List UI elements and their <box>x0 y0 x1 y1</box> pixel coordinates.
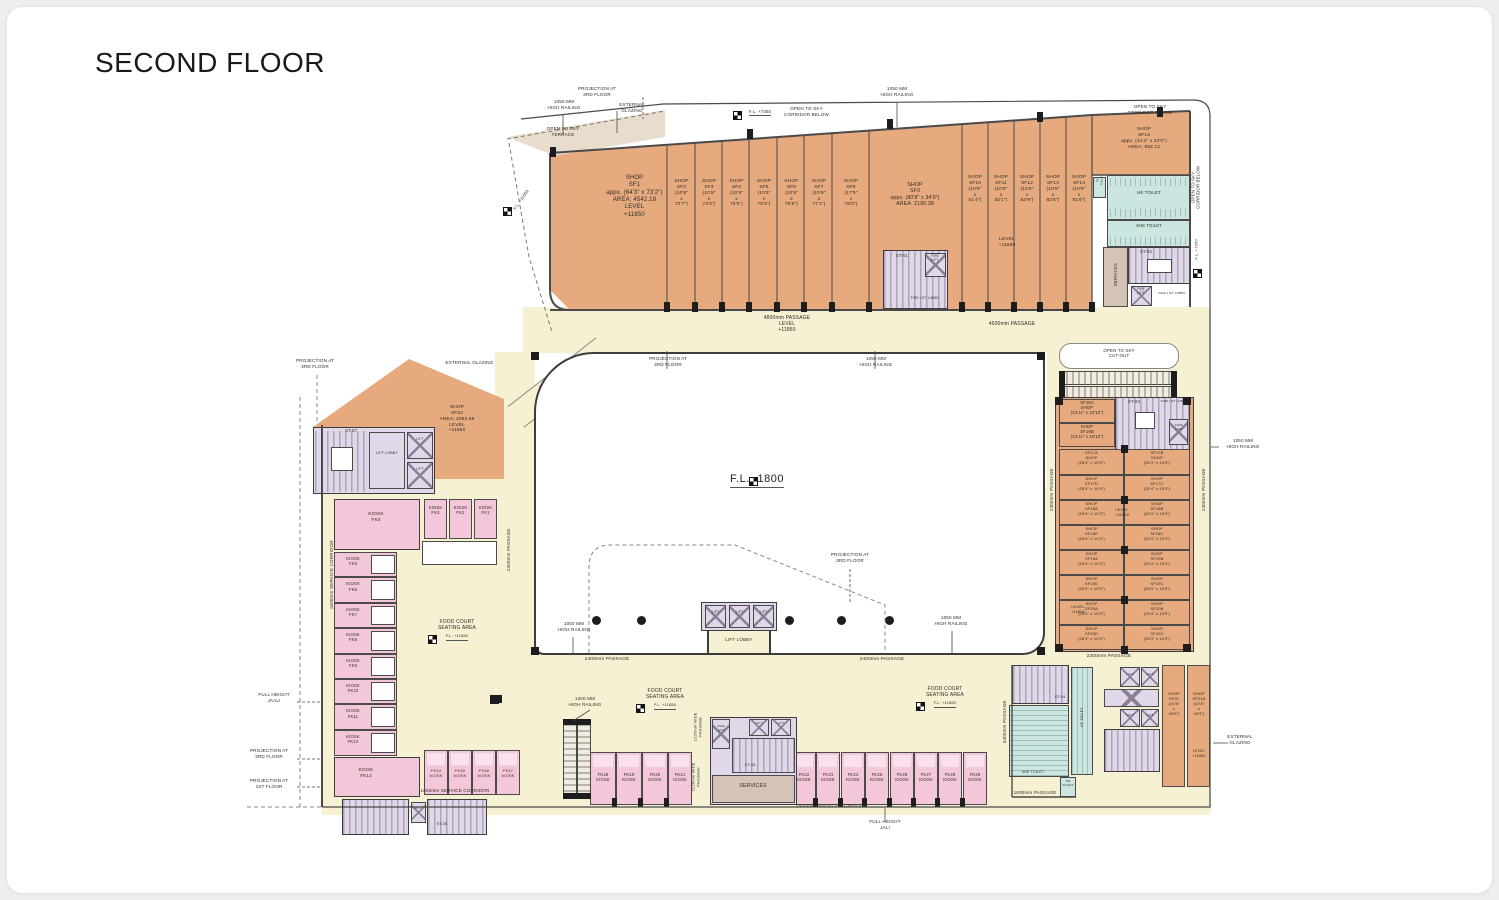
lift-central-2 <box>729 605 750 628</box>
atrium-column <box>637 616 646 625</box>
shop-sf3-label: SHOPSF3(10'9"x74'3") <box>696 179 723 208</box>
shop-sf22-label: SHOPSF22AREA: 2062.68LEVEL+11850 <box>427 405 487 434</box>
level-marker-icon <box>733 111 742 120</box>
grid-level-label-a: LEVEL+11850 <box>1102 508 1142 518</box>
stair-st01-label: ST-01 <box>887 253 917 258</box>
structural-column <box>774 302 780 312</box>
shop-shop-label-line: (28'4" x 10'9") <box>1144 461 1171 466</box>
structural-column <box>1055 397 1063 405</box>
fire-lift-st05-label-line: LIFT <box>718 729 725 733</box>
shop-sf14-label-line: 81'6") <box>1072 198 1085 204</box>
kiosk-fk6-label: KIOSKFK6 <box>335 581 371 591</box>
kiosk-fk29-label-line: KIOSK <box>968 777 982 782</box>
ph-toilet-bottom-label: PHTOILET <box>1058 780 1078 787</box>
kiosk-front-fk23 <box>819 755 837 767</box>
stair-st06-label: ST-06 <box>427 822 457 827</box>
grid-level-label-a-line: +11850 <box>1115 513 1129 518</box>
structural-column <box>911 798 916 807</box>
kiosk-back-fk12 <box>371 733 395 753</box>
passage-2125-label-line: PASSAGE <box>699 717 704 737</box>
passage-4800-label: 4800mm PASSAGELEVEL+11850 <box>742 315 832 333</box>
ann-railing-atrium-bl-line: HIGH RAILING <box>558 627 591 633</box>
shop-sf19a-label-line: (28'4" x 10'9") <box>1078 562 1105 567</box>
kiosk-fk20-label: FK20KIOSK <box>641 772 669 782</box>
kiosk-fk15-label-line: KIOSK <box>454 774 467 779</box>
food-court-label-1-line: SEATING AREA <box>438 625 476 631</box>
he-toilet-top-label: HE TOILET <box>1119 190 1179 195</box>
shop-sf3-label-line: 74'3") <box>702 202 715 208</box>
kiosk-front-fk29 <box>966 755 984 767</box>
lift-st06-label: LIFT <box>408 807 428 811</box>
ann-fl7350-top-text: F.L. +7350 <box>749 109 771 116</box>
ann-projection-atrium-bottom-line: 3RD FLOOR <box>836 558 864 564</box>
shop-sf9-label: SHOPSF9appx. (80'8" x 34'0")AREA: 2190.3… <box>875 182 955 207</box>
shop-sf1-label-line: appx. (64'3" x 73'2") <box>606 190 662 197</box>
lift-st07-2-label-text: LIFT <box>416 468 423 472</box>
service-corridor-south-label: 1500mm SERVICE CORRIDOR <box>769 804 894 810</box>
kiosk-fk25-label: FK25KIOSK <box>863 772 891 782</box>
structural-column <box>1121 596 1128 604</box>
kiosk-fk18-label: FK18KIOSK <box>589 772 617 782</box>
stair-st06-a <box>342 799 409 835</box>
structural-column <box>1121 496 1128 504</box>
structural-column <box>1055 644 1063 652</box>
kiosk-fk3-label: KIOSKFK3 <box>422 505 449 515</box>
structural-column <box>664 798 669 807</box>
structural-column <box>1183 644 1191 652</box>
passage-2400-gridleft-label: 2400mm PASSAGE <box>1049 455 1055 525</box>
passage-3400-label: 3400mm PASSAGE <box>1002 682 1008 762</box>
fire-lift-st02-label: FIRELIFT <box>1129 288 1153 296</box>
level-marker-icon <box>749 477 758 486</box>
escalator-foodcourt-b <box>577 719 591 799</box>
ph-toilet-top-label: PHTOILET <box>1096 170 1103 190</box>
structural-column <box>1089 302 1095 312</box>
ann-projection-atrium-top-line: 3RD FLOOR <box>654 362 682 368</box>
kiosk-fk7-label-line: FK7 <box>349 612 357 617</box>
passage-2125-label: 2125mm WIDEPASSAGE <box>694 699 704 754</box>
food-court-label-3-line: SEATING AREA <box>926 692 964 698</box>
lift-central-3-label: LIFT <box>753 610 774 614</box>
lift-br-4-label: LIFT <box>1140 714 1160 718</box>
lift-st05-b-label-text: LIFT <box>778 722 785 726</box>
kiosk-fk4-label: KIOSKFK4 <box>351 512 401 524</box>
kiosk-front-fk28 <box>941 755 959 767</box>
kiosk-fk5-label-line: FK5 <box>349 561 357 566</box>
lift-st05-b-label: LIFT <box>771 722 791 726</box>
shop-sf17d-label: SHOPSF17D(28'4" x 10'9") <box>1060 477 1123 492</box>
passage-4600-label-text: 4600mm PASSAGE <box>989 321 1035 327</box>
shop-sf19d-label: SHOPSF19D(28'4" x 10'9") <box>1060 577 1123 592</box>
lift-central-1-label: LIFT <box>705 610 726 614</box>
shop-sf18a-label-line: (28'4" x 10'9") <box>1078 512 1105 517</box>
lift-lobby-st07 <box>369 432 405 489</box>
shop-sf7-label: SHOPSF7(10'9"x77'1") <box>806 179 833 208</box>
passage-2400-gridright-label-text: 2400mm PASSAGE <box>1201 468 1207 511</box>
service-corridor-west-label: 1500mm SERVICE CORRIDOR <box>329 520 335 630</box>
shop-sf2-label: SHOPSF2(10'9"x73'7") <box>668 179 695 208</box>
lift-br-1-label-text: LIFT <box>1127 673 1134 677</box>
passage-4600-label: 4600mm PASSAGE <box>972 321 1052 327</box>
lift-br-4-label-text: LIFT <box>1147 714 1154 718</box>
lift-lobby-st07-label-text: LIFT LOBBY <box>376 451 398 455</box>
passage-2400-midleft-label: 2400mm PASSAGE <box>506 515 512 585</box>
kiosk-fk24-label-line: KIOSK <box>846 777 860 782</box>
structural-column <box>612 798 617 807</box>
structural-column <box>746 302 752 312</box>
stair-st04-label: ST-04 <box>1047 695 1073 700</box>
structural-column <box>563 793 591 799</box>
shop-sf21-label-line: 45'9") <box>1168 712 1179 717</box>
ann-ext-glazing-top-line: GLAZING <box>621 108 642 114</box>
kiosk-fk9-label-line: FK9 <box>349 663 357 668</box>
kiosk-back-fk9 <box>371 657 395 676</box>
passage-4800-label-line: +11850 <box>778 327 795 333</box>
kiosk-fk16-label-line: KIOSK <box>478 774 491 779</box>
shop-sf14-label: SHOPSF14(10'9"x81'6") <box>1066 175 1092 204</box>
kiosk-fk21-label-line: KIOSK <box>673 777 687 782</box>
kiosk-front-fk15 <box>451 753 469 765</box>
kiosk-fk19-label: FK19KIOSK <box>615 772 643 782</box>
escalator-cutout-a <box>1059 371 1177 385</box>
shop-sf19b-label: SHOPSF19B(28'4" x 10'9") <box>1125 552 1189 567</box>
ann-open-sky-terrace-line: TERRACE <box>551 132 574 138</box>
ann-fl7350-east: F.L. +7350 <box>1195 227 1200 271</box>
structural-column <box>1037 112 1043 122</box>
structural-column <box>638 798 643 807</box>
kiosk-fk12-label: KIOSKFK12 <box>335 734 371 744</box>
structural-column <box>1037 302 1043 312</box>
shop-sf4-label-line: 75'0") <box>730 202 743 208</box>
food-court-fl-label-2: F.L. +11850 <box>638 703 692 710</box>
kiosk-fk6-label-line: FK6 <box>349 587 357 592</box>
kiosk-back-fk11 <box>371 707 395 726</box>
shop-sf16b-label: SHOPSF16B(23'11" x 10'10") <box>1060 424 1114 439</box>
kiosk-fk28-label-line: KIOSK <box>943 777 957 782</box>
passage-2400-south-b-label-text: 2400mm PASSAGE <box>860 657 905 663</box>
kiosk-fk29-label: FK29KIOSK <box>961 772 989 782</box>
shop-sf18d-label: SHOPSF18D(28'4" x 10'9") <box>1060 527 1123 542</box>
passage-2400-south-b-label: 2400mm PASSAGE <box>842 657 922 663</box>
lift-br-3-label: LIFT <box>1120 714 1140 718</box>
kiosk-front-fk16 <box>475 753 493 765</box>
passage-1600-label: 1600mm PASSAGE <box>1004 790 1066 796</box>
lift-br-3 <box>1120 709 1140 727</box>
level-marker-icon <box>916 702 925 711</box>
kiosk-fk5-label: KIOSKFK5 <box>335 556 371 566</box>
she-toilet-top-label: SHE TOILET <box>1119 223 1179 228</box>
shop-sf20b-label: SHOPSF20B(28'4" x 10'9") <box>1125 602 1189 617</box>
structural-column <box>692 302 698 312</box>
ann-open-sky-corridor-topright-line: CORRIDOR BELOW <box>1128 110 1173 116</box>
fire-lift-st05-label: FIRELIFT <box>708 725 734 732</box>
service-corridor-west-label-text: 1500mm SERVICE CORRIDOR <box>329 540 335 609</box>
fire-lift-lobby-st02-label-text: FIRE LIFT LOBBY <box>1158 292 1186 296</box>
shop-sf21 <box>1162 665 1185 787</box>
food-court-fl-label-3: F.L. +11850 <box>918 701 972 708</box>
shop-sf21a-level-label-line: +11850 <box>1192 754 1205 759</box>
structural-column <box>866 302 872 312</box>
stair-st04-label-text: ST-04 <box>1055 695 1066 700</box>
kiosk-fk28-label: FK28KIOSK <box>936 772 964 782</box>
shop-sf10-label-line: 81'4") <box>968 198 981 204</box>
lift-lobby-br <box>1104 689 1159 707</box>
shop-sf18c-label: SHOPSF18C(28'4" x 10'9") <box>1125 527 1189 542</box>
ph-toilet-top-label-line: TOILET <box>1100 174 1104 185</box>
ann-projection-3rd-sw-line: 3RD FLOOR <box>255 754 283 760</box>
kiosk-fk26-label-line: KIOSK <box>895 777 909 782</box>
ann-railing-atrium-top: 1050 MMHIGH RAILING <box>845 356 907 367</box>
fire-lift-st01-label: FIRELIFT <box>923 255 947 263</box>
shop-sf9-label-line: AREA: 2190.38 <box>896 201 934 207</box>
shop-sf18b-label-line: (28'4" x 10'9") <box>1144 512 1171 517</box>
shop-sf1-label-line: LEVEL <box>625 204 644 211</box>
food-court-fl-label-2-text: F.L. +11850 <box>654 703 676 710</box>
ann-full-height-jaali-line: JAALI <box>267 698 280 704</box>
ann-railing-atrium-bl: 1050 MMHIGH RAILING <box>543 621 605 632</box>
structural-column <box>531 352 539 360</box>
kiosk-front-fk20 <box>645 755 665 767</box>
kiosk-front-fk21 <box>671 755 689 767</box>
shop-sf11-label: SHOPSF11(10'9"x82'1") <box>988 175 1014 204</box>
shop-shop-label-line: (28'4" x 10'9") <box>1078 461 1105 466</box>
shop-sf16a-label-line: (23'11" x 10'10") <box>1071 410 1104 415</box>
shop-sf5-label-line: 75'8") <box>757 202 770 208</box>
shop-sf8-label: SHOPSF8(17'9"x78'0") <box>833 179 869 208</box>
kiosk-fk10-label: KIOSKFK10 <box>335 683 371 693</box>
shop-sf21a-label-line: 45'9") <box>1193 712 1204 717</box>
shop-shop-label: SF17ASHOP(28'4" x 10'9") <box>1060 451 1123 466</box>
floor-plan: 3400mm BRIDGEOPEN TO SKYST-01FIRELIFTFIR… <box>7 7 1499 900</box>
shop-sf4-label: SHOPSF4(10'9"x75'0") <box>723 179 750 208</box>
lift-st05-a-label-text: LIFT <box>756 722 763 726</box>
shop-sf1-label-line: SHOP <box>626 175 644 182</box>
central-lift-lobby-label: LIFT LOBBY <box>709 637 769 643</box>
service-corridor-1600-label: 1600mm SERVICE CORRIDOR <box>405 788 505 794</box>
food-court-label-2: FOOD COURTSEATING AREA <box>620 688 710 700</box>
services-top-right-label-text: SERVICES <box>1113 263 1118 286</box>
shop-sf18c-label-line: (28'4" x 10'9") <box>1144 537 1171 542</box>
kiosk-fk4 <box>334 499 420 550</box>
kiosk-back-fk7 <box>371 606 395 625</box>
lift-lobby-stub <box>707 631 771 655</box>
kiosk-fk20-label-line: KIOSK <box>648 777 662 782</box>
shop-sf19c-label: SHOPSF19C(28'4" x 10'9") <box>1125 577 1189 592</box>
shop-sf17d-label-line: (28'4" x 10'9") <box>1078 487 1105 492</box>
ann-projection-1st-sw-line: 1ST FLOOR <box>256 784 283 790</box>
she-toilet-bottom <box>1009 705 1069 777</box>
shop-sf7-label-line: 77'1") <box>812 202 825 208</box>
ann-open-sky-corridor-east: OPEN TO SKYCORRIDOR BELOW <box>1191 152 1202 222</box>
structural-column <box>1037 352 1045 360</box>
stair-st05-label-text: ST-05 <box>745 763 756 768</box>
kiosk-fk18-label-line: KIOSK <box>596 777 610 782</box>
service-corridor-1600-label-text: 1600mm SERVICE CORRIDOR <box>421 788 490 794</box>
food-court-fl-label-1-text: F.L. +11850 <box>446 634 468 641</box>
ann-open-sky-terrace: OPEN TO SKYTERRACE <box>532 126 594 137</box>
shop-sf12-label-line: 82'9") <box>1020 198 1033 204</box>
shop-sf5-label: SHOPSF5(10'9"x75'8") <box>751 179 778 208</box>
lift-br-1-label: LIFT <box>1120 673 1140 677</box>
lift-br-2-label: LIFT <box>1140 673 1160 677</box>
kiosk-fk11-label: KIOSKFK11 <box>335 708 371 718</box>
structural-column <box>563 719 591 725</box>
escalator-foodcourt-a <box>563 719 577 799</box>
kiosk-fk17-label: FK17KIOSK <box>494 769 522 779</box>
kiosk-fk13-label-line: FK13 <box>360 773 372 779</box>
shop-sf15-label-line: AREA: 952.12 <box>1128 145 1160 151</box>
she-toilet-stalls <box>1110 237 1187 245</box>
structural-column <box>1011 302 1017 312</box>
ann-railing-1200-line: HIGH RAILING <box>569 702 602 708</box>
atrium-column <box>885 616 894 625</box>
shop-sf20d-label-line: (28'4" x 10'9") <box>1078 637 1105 642</box>
lift-central-1 <box>705 605 726 628</box>
lift-br-2-label-text: LIFT <box>1147 673 1154 677</box>
lift-central-2-label-text: LIFT <box>736 610 744 614</box>
food-court-fl-label-3-text: F.L. +11850 <box>934 701 956 708</box>
kiosk-fk8-label: KIOSKFK8 <box>335 632 371 642</box>
central-lift-lobby-label-text: LIFT LOBBY <box>725 637 752 643</box>
shop-sf6-label: SHOPSF6(10'9"x76'5") <box>778 179 805 208</box>
food-court-fl-label-1: F.L. +11850 <box>430 634 484 641</box>
ann-projection-1st-sw: PROJECTION AT1ST FLOOR <box>239 778 299 789</box>
kiosk-back-fk6 <box>371 580 395 599</box>
structural-column <box>959 302 965 312</box>
shop-sf16b-label-line: (23'11" x 10'10") <box>1071 434 1104 439</box>
shop-sf19c-label-line: (28'4" x 10'9") <box>1144 587 1171 592</box>
shop-sf20c-label-line: (28'4" x 10'9") <box>1144 637 1171 642</box>
ph-toilet-bottom-label-line: TOILET <box>1063 784 1074 788</box>
shop-sf19d-label-line: (28'4" x 10'9") <box>1078 587 1105 592</box>
structural-column <box>1121 646 1128 654</box>
kiosk-fk2-label-line: FK2 <box>456 510 464 515</box>
ann-railing-atrium-top-line: HIGH RAILING <box>860 362 893 368</box>
ann-ext-glazing-east-line: GLAZING <box>1229 740 1250 746</box>
canvas-card: SECOND FLOOR 3400mm BRIDGEOPEN TO SKYST-… <box>6 6 1493 894</box>
passage-2200-label-text: 2200mm PASSAGE <box>1087 654 1132 660</box>
kiosk-front-fk27 <box>917 755 935 767</box>
shop-sf17c-label: SHOPSF17C(28'4" x 10'9") <box>1125 477 1189 492</box>
structural-column <box>719 302 725 312</box>
fire-lift-st03-label-line: LIFT <box>1176 428 1183 432</box>
kiosk-fk21-label: FK21KIOSK <box>667 772 693 782</box>
lift-br-2 <box>1141 667 1159 687</box>
shop-sf20c-label: SHOPSF20C(28'4" x 10'9") <box>1125 627 1189 642</box>
structural-column <box>550 147 556 157</box>
kiosk-fk10-label-line: FK10 <box>348 688 359 693</box>
kiosk-fk22-label-line: KIOSK <box>797 777 811 782</box>
he-toilet-bottom-label-text: HE TOILET <box>1080 707 1084 727</box>
shop-sf13-label: SHOPSF13(10'9"x82'6") <box>1040 175 1066 204</box>
kiosk-fk12-label-line: FK12 <box>348 739 359 744</box>
shop-sf18d-label-line: (28'4" x 10'9") <box>1078 537 1105 542</box>
ann-full-height-jali-line: JALI <box>880 825 890 831</box>
atrium-column <box>837 616 846 625</box>
she-toilet-top-label-text: SHE TOILET <box>1136 223 1162 228</box>
lift-central-3-label-text: LIFT <box>760 610 768 614</box>
kiosk-front-fk24 <box>844 755 862 767</box>
kiosk-front-fk14 <box>427 753 445 765</box>
structural-column <box>935 798 940 807</box>
screenshot-stage: SECOND FLOOR 3400mm BRIDGEOPEN TO SKYST-… <box>0 0 1499 900</box>
lift-br-4 <box>1141 709 1159 727</box>
structural-column <box>960 798 965 807</box>
kiosk-front-fk18 <box>593 755 613 767</box>
ann-railing-topleft: 1050 MMHIGH RAILING <box>533 99 595 110</box>
ann-full-height-jaali: FULL HEIGHTJAALI <box>245 692 303 703</box>
shop-sf20b-label-line: (28'4" x 10'9") <box>1144 612 1171 617</box>
ann-ext-glazing-top: EXTERNALGLAZING <box>607 102 657 113</box>
stair-st06-label-text: ST-06 <box>437 822 448 827</box>
lift-st05-a-label: LIFT <box>749 722 769 726</box>
ann-railing-atrium-br-line: HIGH RAILING <box>935 621 968 627</box>
he-toilet-stalls-a <box>1110 178 1187 186</box>
fire-lift-lobby-st01-label-text: FIRE LIFT LOBBY <box>911 297 939 301</box>
structural-column <box>1121 445 1128 453</box>
shop-sf1-label-line: +11850 <box>624 212 645 219</box>
lift-central-3 <box>753 605 774 628</box>
level-marker-icon <box>503 207 512 216</box>
strip-level-label-line: +11850 <box>999 243 1016 249</box>
level-marker-icon <box>428 635 437 644</box>
grid-level-label-b-line: +11850 <box>1071 610 1085 615</box>
shop-sf17c-label-line: (28'4" x 10'9") <box>1144 487 1171 492</box>
structural-column <box>887 119 893 129</box>
shop-sf16a-label: SF16ASHOP(23'11" x 10'10") <box>1060 400 1114 415</box>
kiosk-front-fk26 <box>893 755 911 767</box>
passage-1600-label-text: 1600mm PASSAGE <box>1014 790 1057 796</box>
passage-2400-south-a-label-text: 2400mm PASSAGE <box>585 657 630 663</box>
kiosk-fk11-label-line: FK11 <box>348 714 358 719</box>
he-toilet-bottom-label: HE TOILET <box>1080 697 1084 737</box>
ann-railing-topcenter-line: HIGH RAILING <box>881 92 914 98</box>
stair-st07-label: ST-07 <box>333 428 369 433</box>
structural-column <box>1171 371 1177 399</box>
kiosk-fk19-label-line: KIOSK <box>622 777 636 782</box>
stair-st05-label: ST-05 <box>735 763 765 768</box>
structural-column <box>1059 371 1065 399</box>
she-toilet-bottom-label: SHE TOILET <box>1013 770 1053 774</box>
level-marker-icon <box>636 704 645 713</box>
stair-st05 <box>732 738 795 773</box>
kiosk-fk17-label-line: KIOSK <box>502 774 515 779</box>
structural-column <box>531 647 539 655</box>
ann-full-height-jali: FULL HEIGHTJALI <box>855 819 915 830</box>
stair-st07-label-text: ST-07 <box>345 428 357 433</box>
kiosk-fk4-label-line: FK4 <box>371 518 380 524</box>
passage-2225-label-line: PASSAGE <box>697 767 702 787</box>
ann-railing-topcenter: 1050 MMHIGH RAILING <box>867 86 927 97</box>
shop-sf19b-label-line: (28'4" x 10'9") <box>1144 562 1171 567</box>
food-court-label-2-line: SEATING AREA <box>646 694 684 700</box>
open-sky-cutout-label: OPEN TO SKYCUT-OUT <box>1069 348 1169 359</box>
lift-br-3-label-text: LIFT <box>1127 714 1134 718</box>
kiosk-fk7-label: KIOSKFK7 <box>335 607 371 617</box>
shop-sf12-label: SHOPSF12(10'9"x82'9") <box>1014 175 1040 204</box>
kiosk-front-fk19 <box>619 755 639 767</box>
ann-open-sky-corridor-east-line: CORRIDOR BELOW <box>1196 166 1201 209</box>
ann-railing-topleft-line: HIGH RAILING <box>548 105 581 111</box>
kiosk-back-fk10 <box>371 682 395 701</box>
ann-projection-atrium-bottom: PROJECTION AT3RD FLOOR <box>819 552 881 563</box>
lift-br-1 <box>1120 667 1140 687</box>
passage-3400-label-text: 3400mm PASSAGE <box>1002 700 1008 743</box>
strip-level-label: LEVEL+11850 <box>987 237 1027 249</box>
passage-2400-midleft-label-text: 2400mm PASSAGE <box>506 528 512 571</box>
shop-sf2-label-line: 73'7") <box>675 202 688 208</box>
ann-railing-1200: 1200 MMHIGH RAILING <box>555 696 615 707</box>
